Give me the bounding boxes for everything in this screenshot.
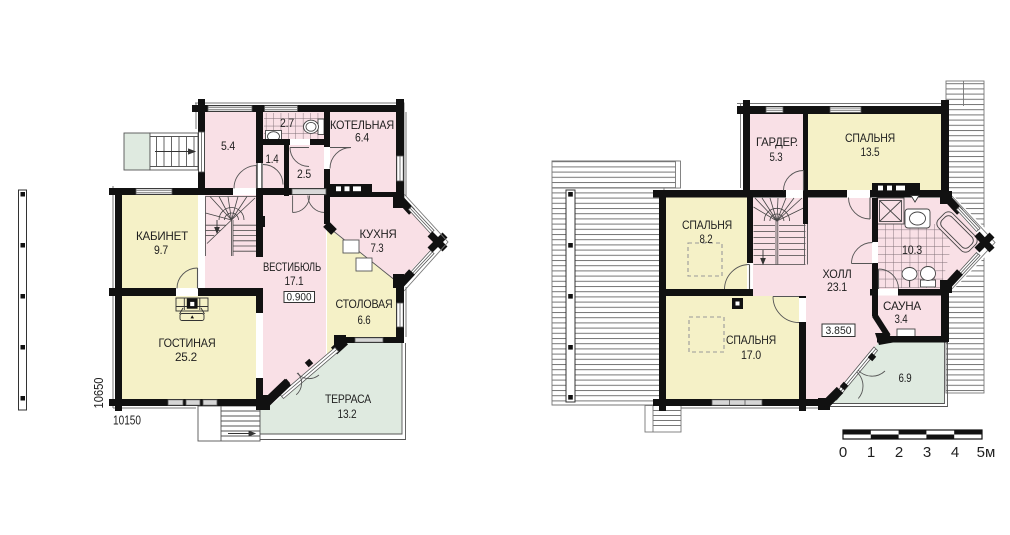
svg-text:3: 3 bbox=[923, 444, 931, 461]
svg-text:КУХНЯ: КУХНЯ bbox=[360, 227, 397, 241]
svg-text:САУНА: САУНА bbox=[883, 299, 921, 313]
svg-text:13.2: 13.2 bbox=[338, 407, 357, 421]
svg-text:1: 1 bbox=[867, 444, 875, 461]
svg-text:6.6: 6.6 bbox=[358, 313, 371, 327]
svg-text:0: 0 bbox=[839, 444, 847, 461]
svg-text:8.2: 8.2 bbox=[700, 232, 713, 246]
svg-text:0.900: 0.900 bbox=[287, 291, 312, 303]
svg-text:5.3: 5.3 bbox=[770, 150, 783, 164]
svg-text:ХОЛЛ: ХОЛЛ bbox=[823, 267, 852, 281]
svg-text:10150: 10150 bbox=[113, 413, 141, 428]
svg-text:2: 2 bbox=[895, 444, 903, 461]
svg-text:10650: 10650 bbox=[91, 378, 106, 409]
svg-text:ТЕРРАСА: ТЕРРАСА bbox=[325, 392, 371, 406]
svg-text:СПАЛЬНЯ: СПАЛЬНЯ bbox=[845, 131, 895, 145]
svg-text:23.1: 23.1 bbox=[827, 280, 847, 294]
svg-text:1.4: 1.4 bbox=[266, 152, 279, 166]
svg-text:13.5: 13.5 bbox=[861, 145, 880, 159]
svg-text:25.2: 25.2 bbox=[175, 350, 198, 364]
svg-text:2.7: 2.7 bbox=[280, 116, 294, 130]
svg-text:7.3: 7.3 bbox=[371, 241, 384, 255]
svg-text:4: 4 bbox=[951, 444, 959, 461]
svg-text:КАБИНЕТ: КАБИНЕТ bbox=[136, 229, 189, 243]
svg-text:ГОСТИНАЯ: ГОСТИНАЯ bbox=[159, 336, 216, 350]
svg-text:5м: 5м bbox=[977, 444, 996, 461]
svg-text:3.4: 3.4 bbox=[895, 312, 908, 326]
svg-text:СТОЛОВАЯ: СТОЛОВАЯ bbox=[336, 297, 393, 311]
svg-text:ГАРДЕР.: ГАРДЕР. bbox=[756, 135, 798, 149]
svg-text:СПАЛЬНЯ: СПАЛЬНЯ bbox=[726, 333, 776, 347]
svg-text:5.4: 5.4 bbox=[221, 139, 235, 153]
svg-text:6.4: 6.4 bbox=[355, 131, 369, 145]
svg-text:ВЕСТИБЮЛЬ: ВЕСТИБЮЛЬ bbox=[263, 260, 321, 274]
svg-text:2.5: 2.5 bbox=[297, 167, 311, 181]
svg-text:3.850: 3.850 bbox=[826, 325, 852, 337]
svg-text:9.7: 9.7 bbox=[154, 243, 168, 257]
svg-text:17.1: 17.1 bbox=[285, 274, 304, 288]
svg-text:17.0: 17.0 bbox=[741, 348, 761, 362]
svg-text:СПАЛЬНЯ: СПАЛЬНЯ bbox=[682, 218, 732, 232]
svg-text:10.3: 10.3 bbox=[902, 243, 922, 257]
svg-text:6.9: 6.9 bbox=[899, 371, 912, 385]
